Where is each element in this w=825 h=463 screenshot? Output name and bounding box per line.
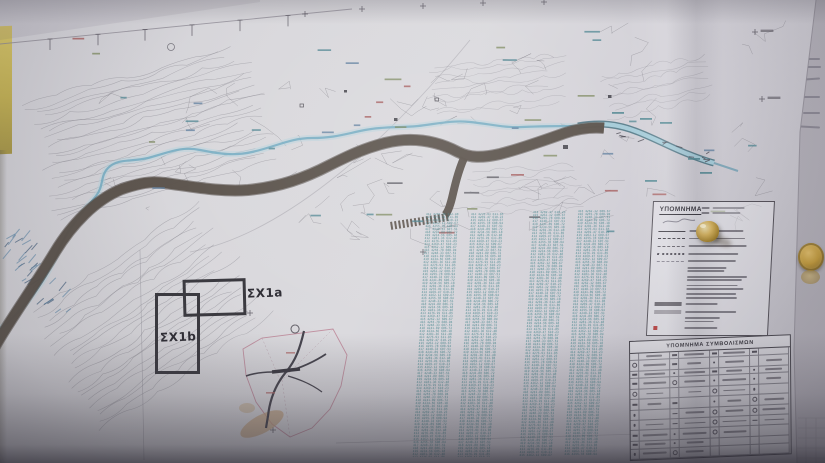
gold-seal-stamp-lower	[801, 270, 820, 284]
photo-of-road-design-map: ΣΧ1a ΣΧ1b 412 4281.36 612.48 413 4276.91…	[0, 0, 825, 463]
gold-seal-stamp	[798, 243, 824, 271]
sheet-edge-lines	[0, 0, 825, 463]
right-sheet-table-lines	[797, 418, 825, 463]
sheet-edge	[794, 0, 816, 463]
